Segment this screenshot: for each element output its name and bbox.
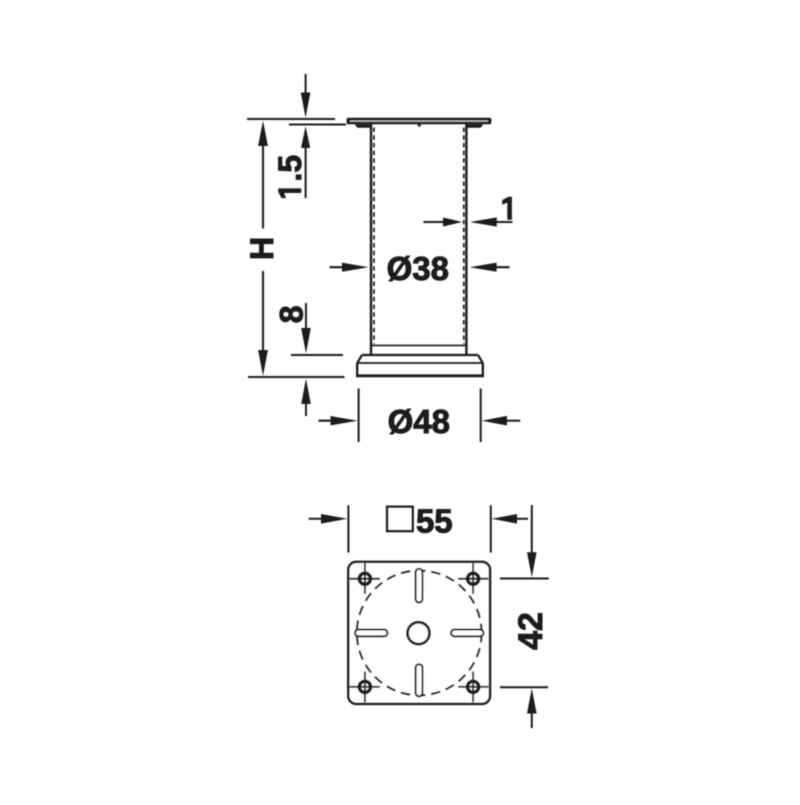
svg-text:55: 55	[416, 502, 453, 539]
svg-text:8: 8	[273, 305, 309, 323]
svg-text:42: 42	[512, 612, 550, 650]
svg-text:.5: .5	[272, 155, 308, 182]
svg-text:H: H	[244, 237, 280, 260]
svg-text:Ø48: Ø48	[388, 403, 450, 440]
svg-text:Ø38: Ø38	[387, 250, 449, 287]
